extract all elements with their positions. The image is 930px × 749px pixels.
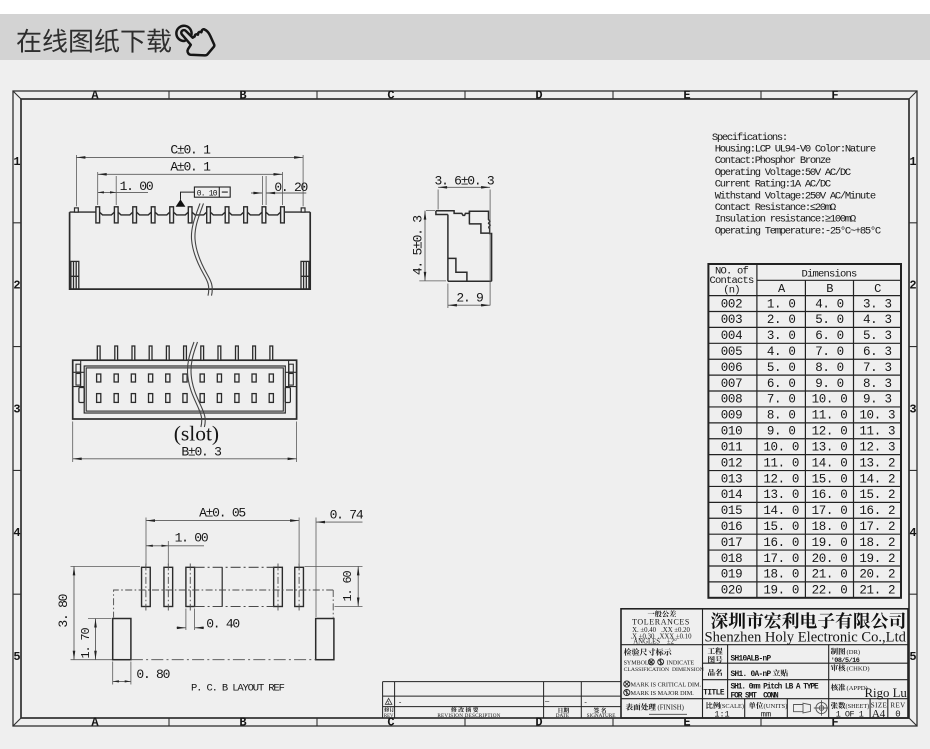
svg-text:1: 1 bbox=[387, 700, 390, 706]
svg-text:4. 3: 4. 3 bbox=[863, 313, 892, 327]
svg-text:DATE: DATE bbox=[556, 713, 569, 719]
svg-text:6. 3: 6. 3 bbox=[863, 345, 892, 359]
svg-text:2. 0: 2. 0 bbox=[767, 313, 796, 327]
svg-text:21. 2: 21. 2 bbox=[859, 584, 895, 598]
svg-text:11. 3: 11. 3 bbox=[859, 425, 895, 439]
svg-text:4: 4 bbox=[13, 526, 20, 540]
svg-text:13. 2: 13. 2 bbox=[859, 456, 895, 470]
svg-text:SH1. 0A-nP: SH1. 0A-nP bbox=[731, 671, 772, 679]
svg-text:0. 74: 0. 74 bbox=[330, 508, 364, 523]
svg-text:SH10ALB-nP: SH10ALB-nP bbox=[731, 655, 772, 663]
svg-text:ANGLES ±2°: ANGLES ±2° bbox=[633, 639, 677, 646]
svg-text:C: C bbox=[874, 282, 881, 296]
svg-text:6. 0: 6. 0 bbox=[815, 329, 844, 343]
svg-text:4. 0: 4. 0 bbox=[815, 297, 844, 311]
svg-text:0. 20: 0. 20 bbox=[274, 180, 307, 195]
svg-text:3: 3 bbox=[13, 403, 20, 417]
svg-text:Contact:Phosphor Bronze: Contact:Phosphor Bronze bbox=[715, 155, 831, 167]
svg-text:(n): (n) bbox=[723, 285, 740, 297]
svg-text:11. 0: 11. 0 bbox=[812, 409, 848, 423]
svg-text:P. C. B LAYOUT REF: P. C. B LAYOUT REF bbox=[191, 683, 285, 695]
svg-text:1. 0: 1. 0 bbox=[767, 297, 796, 311]
svg-text:5: 5 bbox=[13, 650, 20, 664]
svg-text:(CHKD): (CHKD) bbox=[847, 665, 870, 672]
svg-text:004: 004 bbox=[721, 329, 742, 343]
svg-text:19. 0: 19. 0 bbox=[763, 584, 799, 598]
svg-text:14. 0: 14. 0 bbox=[763, 504, 799, 518]
svg-text:3: 3 bbox=[909, 403, 916, 417]
svg-text:006: 006 bbox=[721, 361, 742, 375]
svg-text:21. 0: 21. 0 bbox=[812, 568, 848, 582]
svg-text:18. 0: 18. 0 bbox=[763, 568, 799, 582]
svg-text:10. 0: 10. 0 bbox=[763, 441, 799, 455]
svg-text:TOLERANCES: TOLERANCES bbox=[632, 618, 690, 627]
svg-text:'08/5/16: '08/5/16 bbox=[831, 657, 860, 665]
svg-text:E: E bbox=[683, 89, 690, 103]
svg-text:22. 0: 22. 0 bbox=[812, 584, 848, 598]
svg-text:Operating Voltage:50V AC/DC: Operating Voltage:50V AC/DC bbox=[715, 167, 851, 179]
svg-text:B: B bbox=[239, 89, 246, 103]
svg-text:Operating Temperature:-25°C~+8: Operating Temperature:-25°C~+85°C bbox=[715, 225, 881, 237]
svg-text:7. 0: 7. 0 bbox=[767, 393, 796, 407]
svg-text:B: B bbox=[239, 716, 246, 730]
svg-text:12. 0: 12. 0 bbox=[812, 425, 848, 439]
svg-text:1. 70: 1. 70 bbox=[79, 628, 93, 659]
svg-text:5. 3: 5. 3 bbox=[863, 329, 892, 343]
svg-text:9. 0: 9. 0 bbox=[767, 425, 796, 439]
svg-text:010: 010 bbox=[721, 425, 742, 439]
svg-text:A4: A4 bbox=[872, 708, 886, 720]
svg-text:18. 2: 18. 2 bbox=[859, 536, 895, 550]
svg-text:B: B bbox=[826, 282, 833, 296]
svg-text:013: 013 bbox=[721, 472, 742, 486]
svg-text:1. 60: 1. 60 bbox=[341, 571, 355, 602]
svg-text:12. 3: 12. 3 bbox=[859, 441, 895, 455]
svg-text:1. 00: 1. 00 bbox=[175, 531, 208, 546]
svg-text:017: 017 bbox=[721, 536, 742, 550]
svg-text:17. 0: 17. 0 bbox=[812, 504, 848, 518]
svg-text:015: 015 bbox=[721, 504, 742, 518]
svg-text:0. 80: 0. 80 bbox=[136, 667, 169, 682]
svg-text:D: D bbox=[535, 716, 542, 730]
svg-text:1. 00: 1. 00 bbox=[120, 179, 153, 194]
svg-text:B±0. 3: B±0. 3 bbox=[181, 444, 221, 459]
svg-text:10. 0: 10. 0 bbox=[812, 393, 848, 407]
svg-text:C: C bbox=[387, 89, 394, 103]
svg-text:020: 020 bbox=[721, 584, 742, 598]
svg-text:REV: REV bbox=[384, 714, 394, 719]
svg-text:16. 2: 16. 2 bbox=[859, 504, 895, 518]
svg-text:Insulation resistance:≥100mΩ: Insulation resistance:≥100mΩ bbox=[715, 214, 856, 226]
svg-text:019: 019 bbox=[721, 568, 742, 582]
svg-text:13. 0: 13. 0 bbox=[812, 441, 848, 455]
svg-text:018: 018 bbox=[721, 552, 742, 566]
svg-text:14. 0: 14. 0 bbox=[812, 456, 848, 470]
svg-text:A±0. 05: A±0. 05 bbox=[199, 505, 245, 520]
svg-text:18. 0: 18. 0 bbox=[812, 520, 848, 534]
svg-text:15. 0: 15. 0 bbox=[812, 472, 848, 486]
svg-text:5. 0: 5. 0 bbox=[815, 313, 844, 327]
svg-text:12. 0: 12. 0 bbox=[763, 472, 799, 486]
svg-text:3. 0: 3. 0 bbox=[767, 329, 796, 343]
svg-text:15. 2: 15. 2 bbox=[859, 488, 895, 502]
svg-text:F: F bbox=[831, 89, 838, 103]
svg-text:16. 0: 16. 0 bbox=[763, 536, 799, 550]
svg-text:005: 005 bbox=[721, 345, 742, 359]
svg-text:20. 2: 20. 2 bbox=[859, 568, 895, 582]
svg-text:4: 4 bbox=[909, 526, 916, 540]
svg-text:Specifications:: Specifications: bbox=[712, 132, 787, 144]
svg-text:5. 0: 5. 0 bbox=[767, 361, 796, 375]
svg-text:7. 0: 7. 0 bbox=[815, 345, 844, 359]
svg-text:8. 0: 8. 0 bbox=[815, 361, 844, 375]
svg-text:SYMBOLS: SYMBOLS bbox=[624, 660, 652, 666]
svg-text:Contact Resistance:≤20mΩ: Contact Resistance:≤20mΩ bbox=[715, 202, 836, 214]
svg-text:(FINISH): (FINISH) bbox=[658, 705, 684, 712]
svg-text:012: 012 bbox=[721, 456, 742, 470]
svg-text:FOR SMT CONN: FOR SMT CONN bbox=[731, 693, 780, 701]
svg-text:(DR): (DR) bbox=[847, 649, 861, 656]
svg-text:CLASSIFICATION DIMENSION: CLASSIFICATION DIMENSION bbox=[624, 667, 704, 673]
svg-text:SH1. 0mm Pitch LB A TYPE: SH1. 0mm Pitch LB A TYPE bbox=[731, 684, 819, 692]
svg-text:0. 40: 0. 40 bbox=[206, 616, 239, 631]
svg-text:14. 2: 14. 2 bbox=[859, 472, 895, 486]
svg-text:1: 1 bbox=[13, 155, 20, 169]
svg-text:5: 5 bbox=[909, 650, 916, 664]
svg-text:13. 0: 13. 0 bbox=[763, 488, 799, 502]
svg-text:INDICATE: INDICATE bbox=[667, 660, 695, 666]
svg-text:016: 016 bbox=[721, 520, 742, 534]
svg-text:A±0. 1: A±0. 1 bbox=[170, 159, 211, 174]
svg-text:20. 0: 20. 0 bbox=[812, 552, 848, 566]
svg-text:11. 0: 11. 0 bbox=[763, 456, 799, 470]
svg-text:—: — bbox=[544, 699, 550, 707]
svg-text:0: 0 bbox=[895, 710, 900, 720]
svg-text:MARK IS MAJOR DIM.: MARK IS MAJOR DIM. bbox=[631, 690, 695, 697]
svg-text:4. 5±0. 3: 4. 5±0. 3 bbox=[411, 216, 426, 275]
svg-text:19. 2: 19. 2 bbox=[859, 552, 895, 566]
svg-text:Dimensions: Dimensions bbox=[801, 268, 857, 280]
svg-text:1: 1 bbox=[909, 155, 916, 169]
svg-text:17. 0: 17. 0 bbox=[763, 552, 799, 566]
svg-text:C±0. 1: C±0. 1 bbox=[170, 142, 211, 157]
svg-text:16. 0: 16. 0 bbox=[812, 488, 848, 502]
svg-text:4. 0: 4. 0 bbox=[767, 345, 796, 359]
svg-text:SIGNATURE: SIGNATURE bbox=[587, 713, 616, 719]
svg-text:19. 0: 19. 0 bbox=[812, 536, 848, 550]
svg-text:10. 3: 10. 3 bbox=[859, 409, 895, 423]
svg-text:REVISION DESCRIPTION: REVISION DESCRIPTION bbox=[437, 713, 500, 719]
svg-text:A: A bbox=[91, 89, 99, 103]
svg-text:17. 2: 17. 2 bbox=[859, 520, 895, 534]
svg-text:009: 009 bbox=[721, 409, 742, 423]
svg-text:9. 0: 9. 0 bbox=[815, 377, 844, 391]
svg-text:Housing:LCP UL94-V0 Color:Natu: Housing:LCP UL94-V0 Color:Nature bbox=[715, 144, 876, 156]
svg-text:Withstand Voltage:250V AC/Minu: Withstand Voltage:250V AC/Minute bbox=[715, 190, 876, 202]
svg-text:8. 0: 8. 0 bbox=[767, 409, 796, 423]
svg-text:0. 10: 0. 10 bbox=[197, 189, 218, 198]
svg-text:2: 2 bbox=[909, 279, 916, 293]
svg-text:7. 3: 7. 3 bbox=[863, 361, 892, 375]
svg-text:Shenzhen Holy Electronic Co.,L: Shenzhen Holy Electronic Co.,Ltd bbox=[705, 630, 907, 646]
svg-text:007: 007 bbox=[721, 377, 742, 391]
svg-text:6. 0: 6. 0 bbox=[767, 377, 796, 391]
svg-text:mm: mm bbox=[761, 709, 771, 719]
svg-text:D: D bbox=[535, 89, 542, 103]
svg-text:TITLE: TITLE bbox=[703, 689, 725, 697]
svg-text:-: - bbox=[398, 700, 402, 708]
svg-text:3. 3: 3. 3 bbox=[863, 297, 892, 311]
svg-text:8. 3: 8. 3 bbox=[863, 377, 892, 391]
svg-text:008: 008 bbox=[721, 393, 742, 407]
svg-text:003: 003 bbox=[721, 313, 742, 327]
svg-text:Current Rating:1A AC/DC: Current Rating:1A AC/DC bbox=[715, 179, 831, 191]
svg-text:1 OF 1: 1 OF 1 bbox=[836, 709, 864, 719]
svg-text:011: 011 bbox=[721, 441, 742, 455]
svg-text:MARK IS CRITICAL DIM.: MARK IS CRITICAL DIM. bbox=[631, 681, 702, 688]
svg-text:15. 0: 15. 0 bbox=[763, 520, 799, 534]
svg-text:2: 2 bbox=[13, 279, 20, 293]
svg-text:3. 6±0. 3: 3. 6±0. 3 bbox=[435, 173, 494, 188]
svg-text:9. 3: 9. 3 bbox=[863, 393, 892, 407]
svg-text:1:1: 1:1 bbox=[714, 709, 729, 719]
svg-text:REV: REV bbox=[890, 702, 905, 710]
svg-text:2. 9: 2. 9 bbox=[456, 291, 483, 306]
svg-text:-: - bbox=[584, 700, 588, 708]
svg-text:A: A bbox=[91, 716, 99, 730]
svg-text:(slot): (slot) bbox=[174, 422, 219, 446]
svg-text:3. 80: 3. 80 bbox=[56, 594, 71, 627]
svg-text:014: 014 bbox=[721, 488, 742, 502]
svg-text:Rigo Lu: Rigo Lu bbox=[865, 686, 908, 700]
svg-text:002: 002 bbox=[721, 297, 742, 311]
